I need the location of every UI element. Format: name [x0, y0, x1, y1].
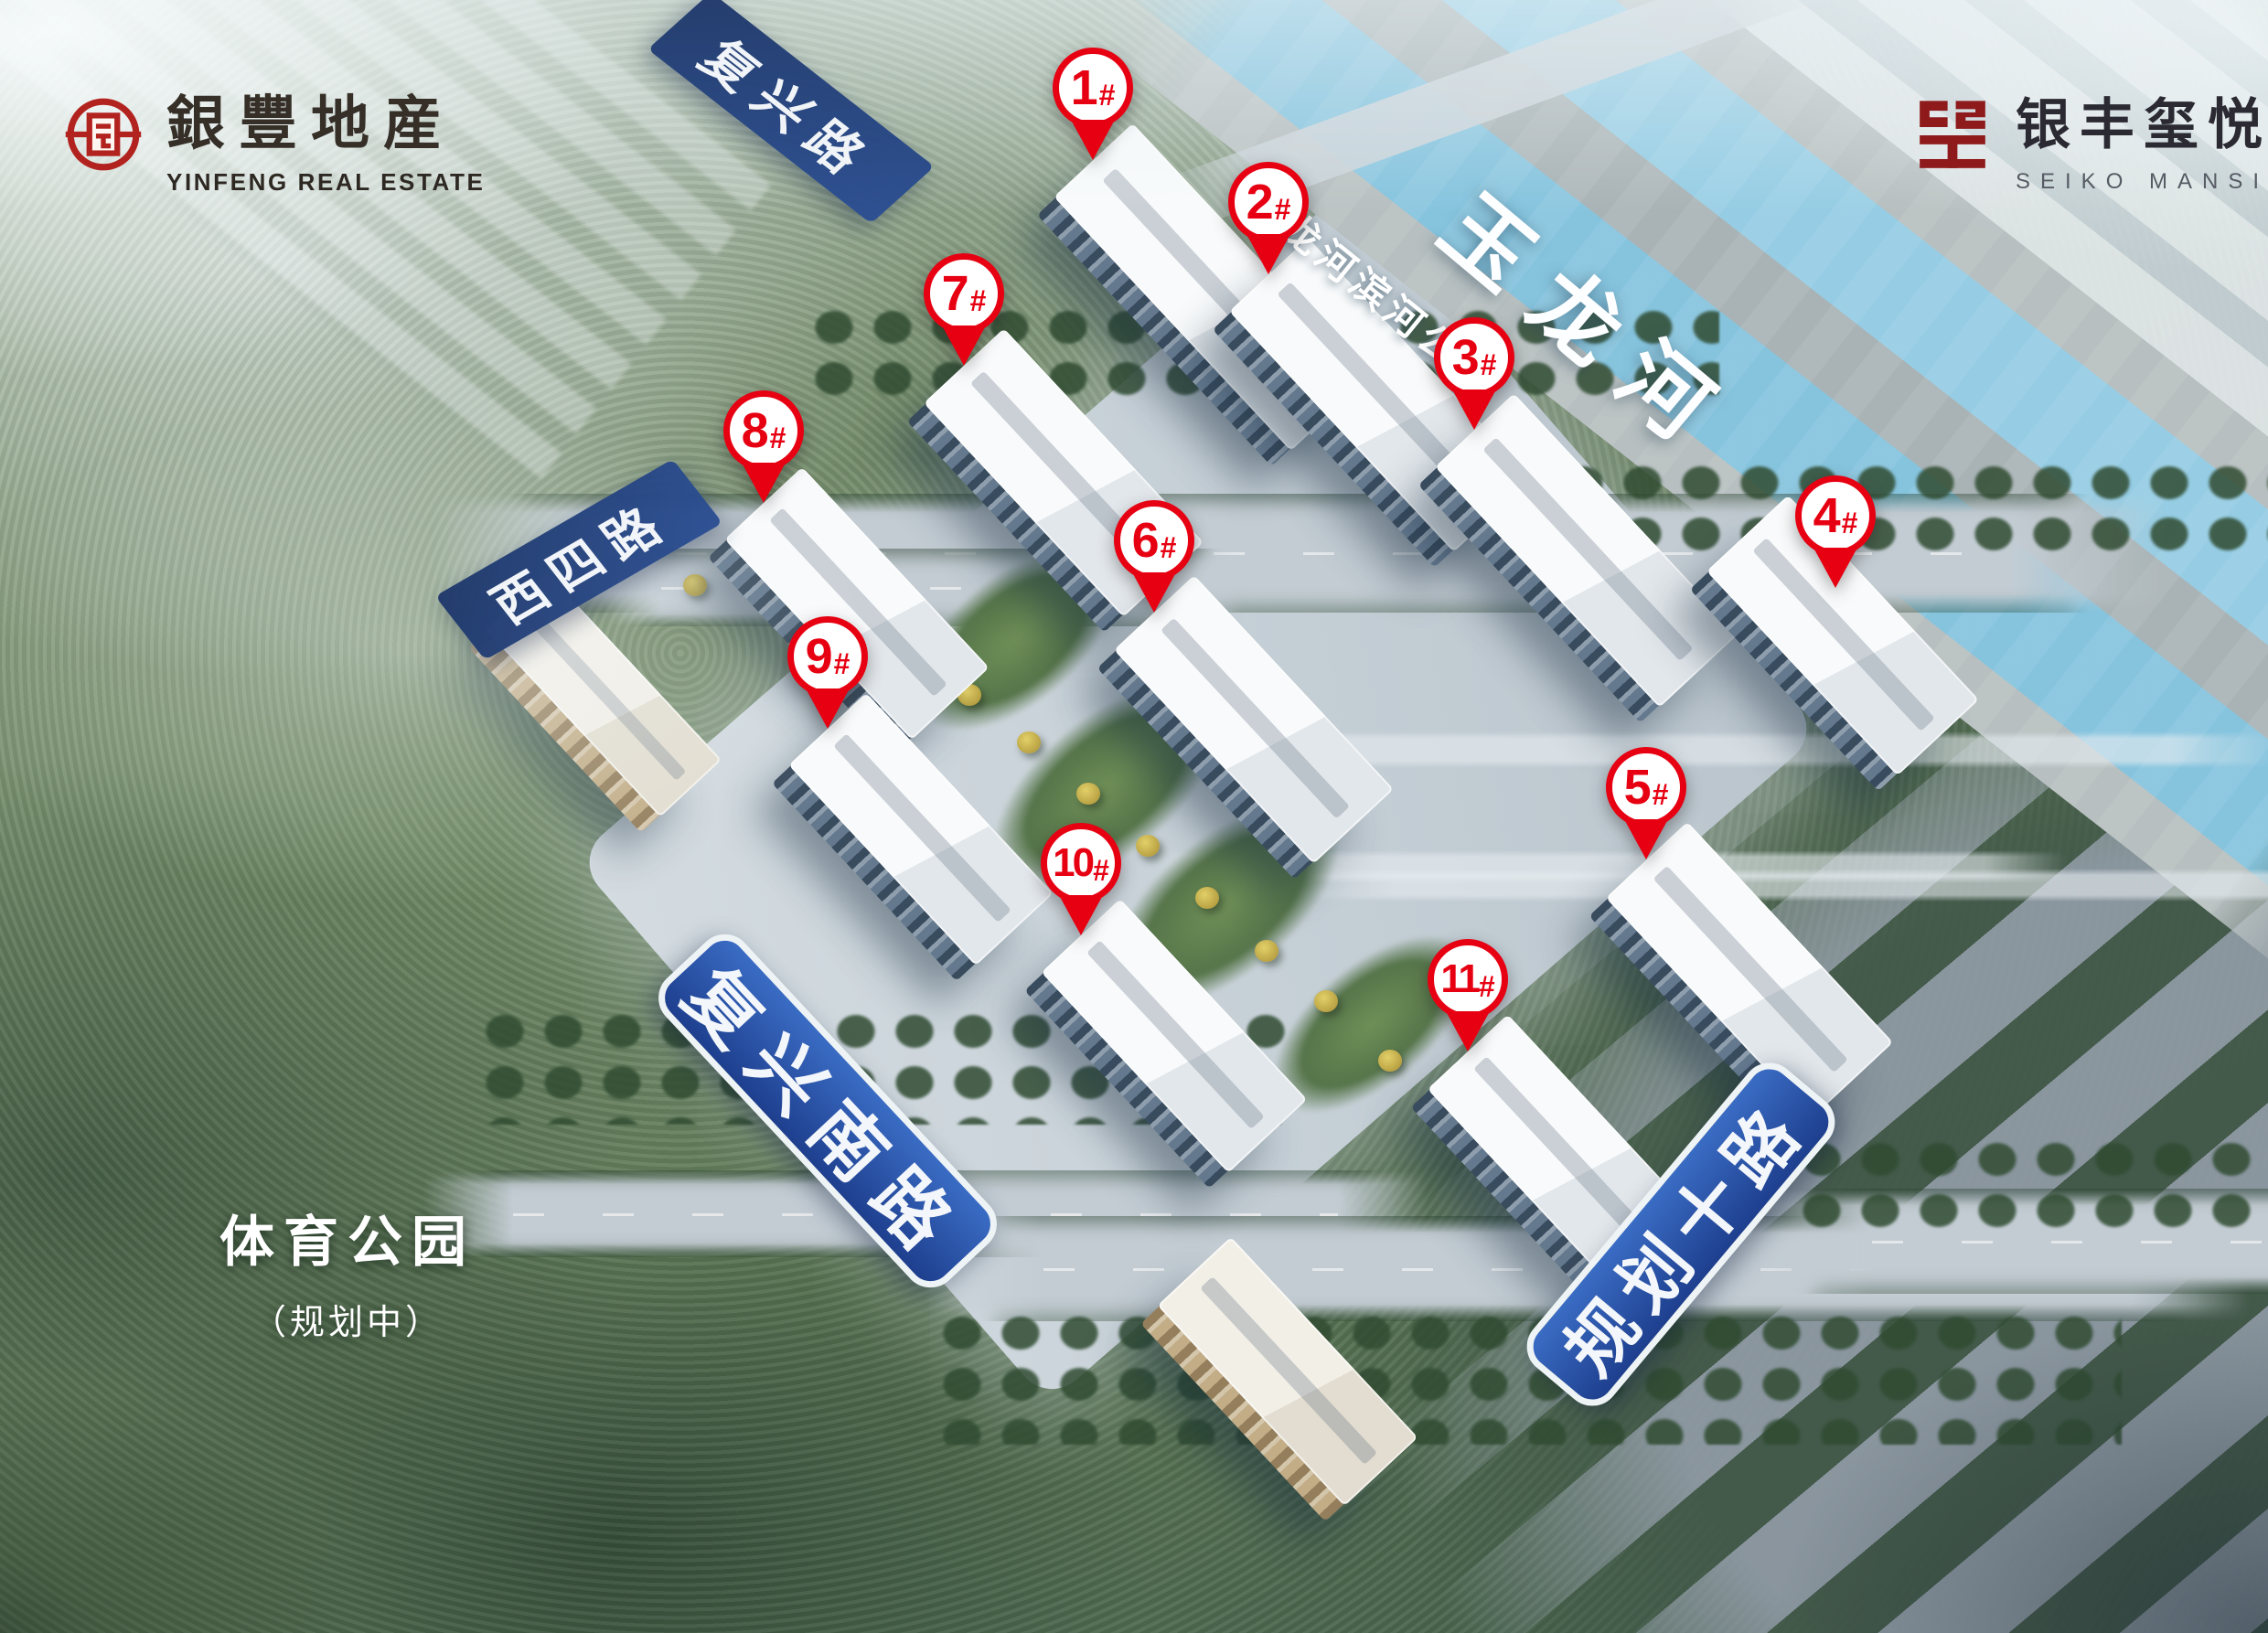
marker-hash: # [1093, 856, 1109, 885]
marker-pointer [1813, 548, 1857, 588]
marker-pin: 6# [1114, 500, 1194, 581]
marker-pin: 4# [1795, 475, 1876, 556]
marker-hash: # [834, 649, 850, 678]
autumn-tree [1378, 1050, 1402, 1072]
marker-number: 10 [1053, 843, 1092, 883]
marker-number: 3 [1452, 333, 1480, 382]
yinfeng-seal-icon [64, 95, 143, 178]
marker-number: 9 [806, 632, 833, 681]
marker-pin: 8# [723, 390, 804, 471]
sports-park-label: 体育公园 （规划中） [219, 1198, 476, 1344]
developer-name-en: YINFENG REAL ESTATE [166, 168, 485, 197]
autumn-tree [1255, 940, 1278, 962]
autumn-tree [1314, 990, 1338, 1012]
marker-pin: 7# [924, 253, 1004, 334]
tree-row [933, 1307, 2122, 1445]
building-marker-10[interactable]: 10# [1041, 823, 1121, 935]
marker-number: 2 [1246, 177, 1274, 227]
marker-hash: # [1653, 780, 1669, 809]
sports-park-name: 体育公园 [219, 1198, 476, 1277]
seiko-mansion-monogram-icon [1913, 96, 1992, 179]
marker-pointer [1446, 1011, 1490, 1051]
site-plan-canvas: 复兴路 西四路 复兴南路 规划十路 玉龙河 玉龙河滨河公园 体育公园 （规划中）… [0, 0, 2268, 1633]
marker-hash: # [1161, 533, 1177, 562]
developer-name-cn: 銀豐地産 [166, 77, 485, 161]
marker-pin: 3# [1434, 317, 1514, 398]
building-marker-6[interactable]: 6# [1114, 500, 1194, 613]
autumn-tree [683, 574, 707, 596]
marker-pointer [1624, 819, 1668, 859]
building-marker-2[interactable]: 2# [1228, 162, 1309, 274]
project-name-en: SEIKO MANSION [2016, 169, 2268, 195]
marker-pointer [806, 688, 850, 729]
marker-hash: # [1481, 350, 1497, 379]
marker-pointer [1059, 895, 1103, 935]
marker-number: 7 [942, 269, 969, 318]
marker-pointer [742, 463, 786, 503]
marker-number: 6 [1132, 516, 1160, 565]
marker-number: 1 [1071, 63, 1098, 112]
marker-number: 11 [1440, 959, 1478, 999]
sports-park-status: （规划中） [219, 1294, 476, 1344]
developer-logo: 銀豐地産 YINFENG REAL ESTATE [64, 77, 485, 197]
marker-pointer [1452, 390, 1496, 430]
marker-pin: 11# [1428, 939, 1508, 1019]
building-marker-11[interactable]: 11# [1428, 939, 1508, 1051]
tree-row [1792, 1134, 2268, 1243]
marker-number: 8 [742, 406, 769, 455]
project-logo: 银丰玺悦 SEIKO MANSION [1913, 80, 2268, 195]
building-marker-5[interactable]: 5# [1606, 747, 1686, 859]
marker-pointer [1132, 572, 1176, 613]
project-name-cn: 银丰玺悦 [2016, 80, 2268, 160]
marker-hash: # [1099, 80, 1116, 110]
marker-pin: 5# [1606, 747, 1686, 827]
autumn-tree [1017, 731, 1041, 753]
marker-pointer [942, 326, 986, 366]
marker-pin: 1# [1053, 48, 1133, 128]
marker-pointer [1246, 234, 1290, 274]
building-marker-7[interactable]: 7# [924, 253, 1004, 366]
marker-number: 4 [1813, 491, 1841, 540]
marker-pointer [1071, 120, 1115, 160]
marker-hash: # [1479, 972, 1495, 1001]
marker-pin: 2# [1228, 162, 1309, 242]
building-marker-4[interactable]: 4# [1795, 475, 1876, 588]
marker-hash: # [770, 423, 786, 453]
marker-pin: 10# [1041, 823, 1121, 903]
building-marker-8[interactable]: 8# [723, 390, 804, 503]
marker-pin: 9# [787, 616, 868, 697]
autumn-tree [1136, 835, 1160, 857]
marker-hash: # [1275, 195, 1291, 224]
autumn-tree [1076, 783, 1100, 805]
marker-hash: # [970, 286, 987, 315]
tree-row [1555, 457, 2268, 558]
marker-hash: # [1842, 508, 1858, 538]
building-marker-3[interactable]: 3# [1434, 317, 1514, 430]
autumn-tree [1195, 887, 1219, 909]
building-marker-1[interactable]: 1# [1053, 48, 1133, 160]
marker-number: 5 [1624, 763, 1652, 812]
building-marker-9[interactable]: 9# [787, 616, 868, 729]
